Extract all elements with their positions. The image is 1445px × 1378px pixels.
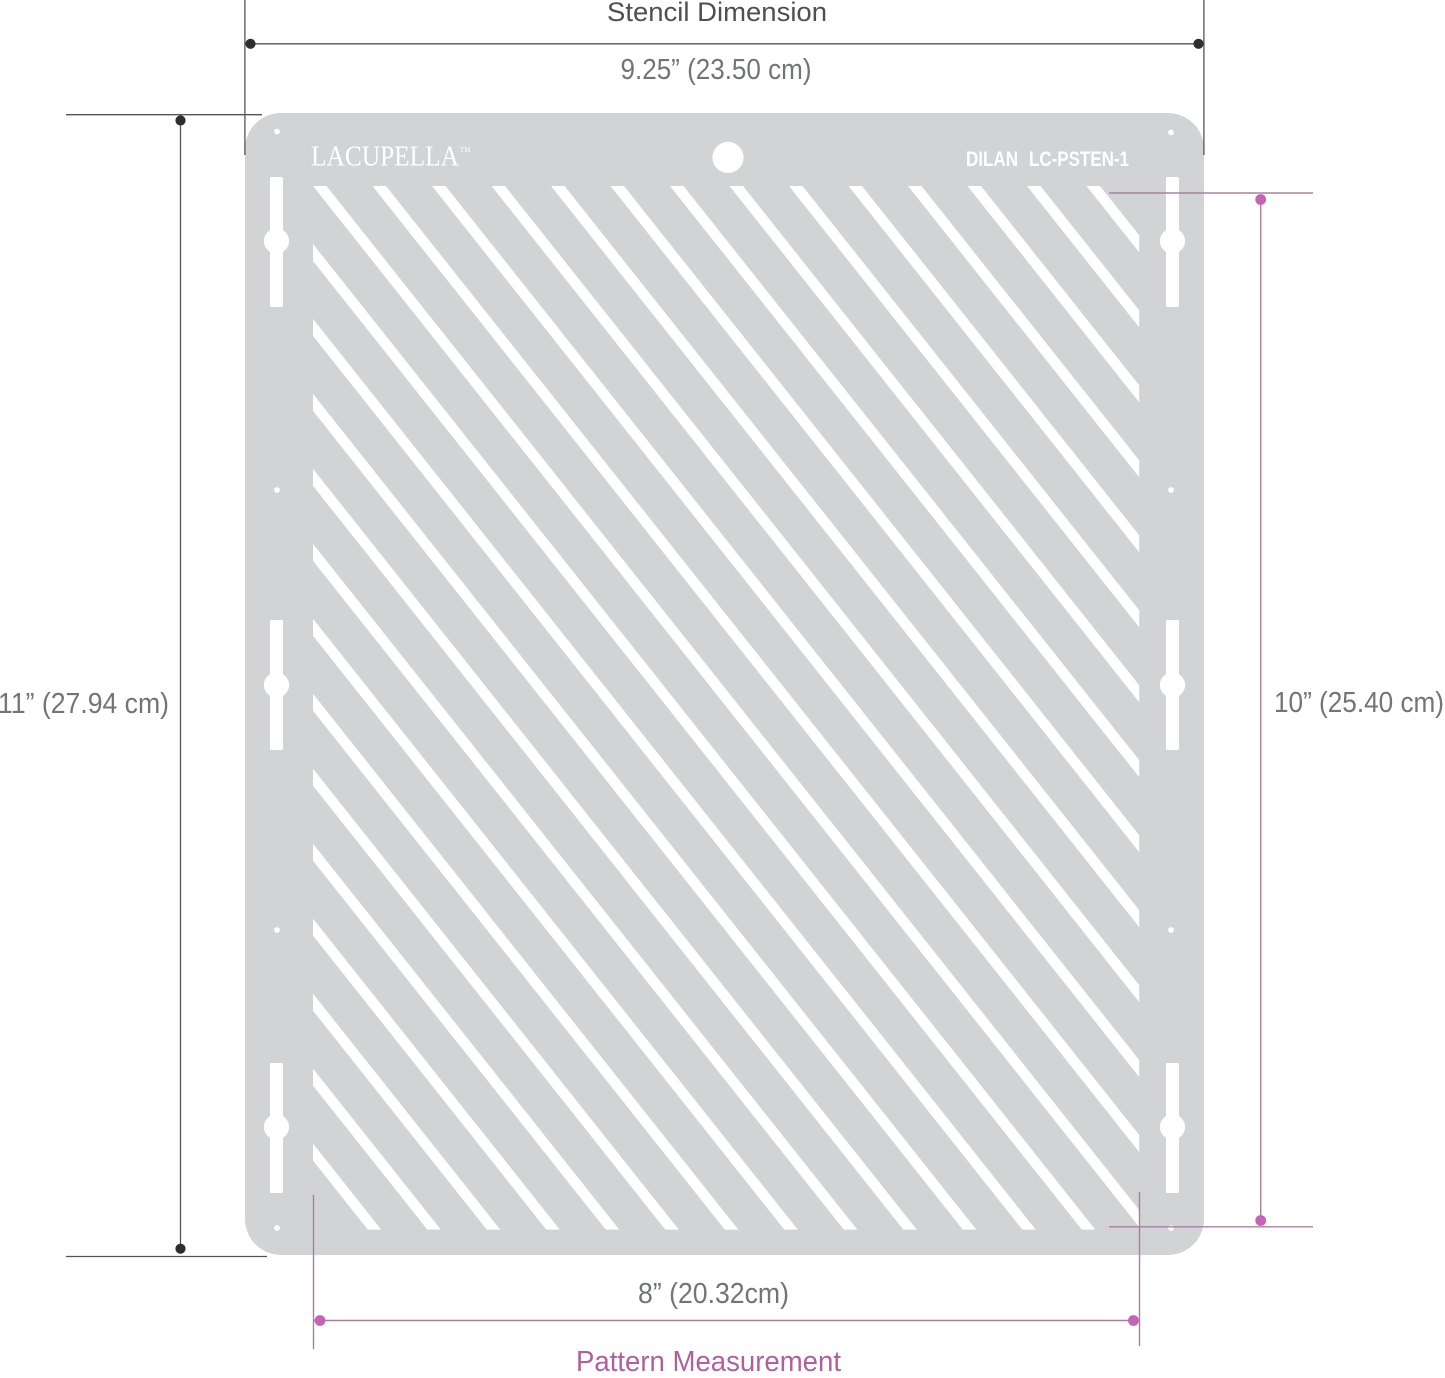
svg-text:Stencil Dimension: Stencil Dimension [607,0,827,27]
svg-text:DILAN: DILAN [966,148,1018,171]
svg-text:10” (25.40 cm): 10” (25.40 cm) [1274,687,1444,719]
svg-text:LACUPELLA: LACUPELLA [311,141,459,173]
svg-text:9.25” (23.50 cm): 9.25” (23.50 cm) [621,54,812,86]
svg-text:8” (20.32cm): 8” (20.32cm) [638,1278,789,1310]
svg-text:11” (27.94 cm): 11” (27.94 cm) [0,688,169,720]
svg-text:LC-PSTEN-1: LC-PSTEN-1 [1029,148,1129,171]
svg-text:Pattern Measurement: Pattern Measurement [576,1346,841,1373]
svg-text:TM: TM [460,146,471,154]
